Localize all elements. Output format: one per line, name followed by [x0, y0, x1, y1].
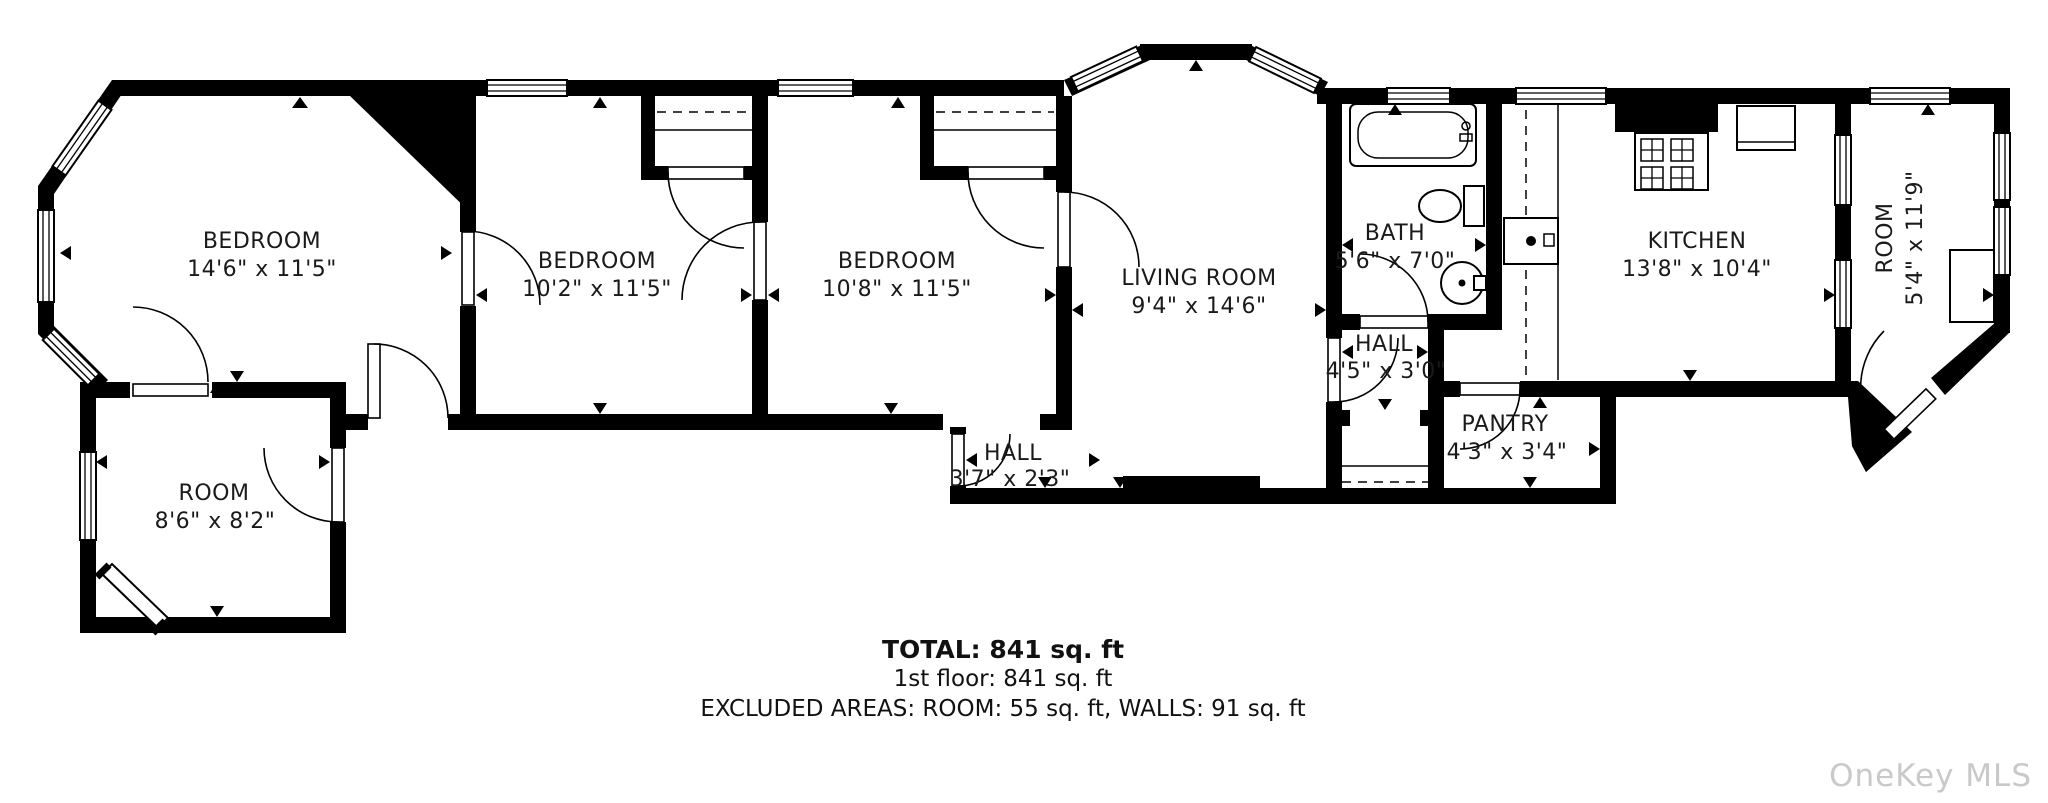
window-living-bay-right	[1249, 47, 1321, 93]
area-summary: TOTAL: 841 sq. ft 1st floor: 841 sq. ft …	[700, 635, 1305, 722]
window-bay-left-wall	[38, 210, 54, 302]
floorplan-page: BEDROOM 14'6" x 11'5" BEDROOM 10'2" x 11…	[0, 0, 2048, 803]
total-area-text: TOTAL: 841 sq. ft	[882, 635, 1124, 664]
window-bedroom3-top	[778, 80, 853, 96]
floor-area-text: 1st floor: 841 sq. ft	[894, 666, 1113, 692]
label-pantry: PANTRY	[1461, 412, 1548, 437]
door-bedroom3-closet	[968, 167, 1044, 248]
label-kitchen: KITCHEN	[1648, 229, 1747, 254]
excluded-areas-text: EXCLUDED AREAS: ROOM: 55 sq. ft, WALLS: …	[700, 696, 1305, 722]
watermark-onekey-mls: OneKey MLS	[1829, 758, 2032, 794]
dims-bedroom-1: 14'6" x 11'5"	[187, 257, 337, 282]
window-living-bay-left	[1071, 47, 1143, 92]
dims-right-room: 5'4" x 11'9"	[1903, 170, 1928, 305]
window-bedroom2-top	[487, 80, 567, 96]
window-bath-top	[1387, 88, 1450, 104]
floorplan-drawing: BEDROOM 14'6" x 11'5" BEDROOM 10'2" x 11…	[0, 0, 2048, 803]
window-bay-upper-diagonal	[53, 101, 112, 176]
fixtures	[97, 104, 1994, 633]
dims-lower-hall: 3'7" x 2'3"	[950, 467, 1071, 492]
walls	[38, 44, 2010, 633]
window-room-left	[80, 452, 96, 540]
door-bedroom1-bottom-right	[368, 344, 448, 418]
refrigerator	[1737, 106, 1795, 150]
bathtub	[1350, 104, 1476, 166]
door-bedroom1-to-room	[133, 307, 208, 396]
dims-bedroom-2: 10'2" x 11'5"	[522, 277, 672, 302]
window-kitchen-top	[1516, 88, 1606, 104]
kitchen-sink	[1504, 218, 1558, 264]
door-bedroom2-to-bedroom3	[682, 222, 766, 300]
label-bedroom-3: BEDROOM	[838, 249, 956, 274]
bedroom3-closet-shelf	[934, 112, 1056, 130]
window-right-room-top	[1870, 88, 1950, 104]
stove	[1635, 133, 1708, 190]
label-bedroom-1: BEDROOM	[203, 229, 321, 254]
hall-closet-shelf	[1342, 466, 1428, 482]
label-bedroom-2: BEDROOM	[538, 249, 656, 274]
label-lower-hall: HALL	[984, 441, 1042, 466]
window-right-room-side-2	[1994, 207, 2010, 275]
door-bedroom2-closet	[668, 167, 744, 248]
window-kitchen-divider-2	[1835, 260, 1851, 328]
dims-kitchen: 13'8" x 10'4"	[1622, 257, 1772, 282]
toilet	[1419, 186, 1484, 226]
dims-bedroom-3: 10'8" x 11'5"	[822, 277, 972, 302]
right-room-closet	[1950, 250, 1994, 322]
dims-bath: 5'6" x 7'0"	[1335, 249, 1456, 274]
label-right-room: ROOM	[1873, 203, 1898, 274]
dims-left-room: 8'6" x 8'2"	[155, 509, 276, 534]
label-bath: BATH	[1365, 221, 1425, 246]
label-living-room: LIVING ROOM	[1121, 266, 1276, 291]
label-left-room: ROOM	[179, 481, 250, 506]
dims-upper-hall: 4'5" x 3'0"	[1326, 359, 1447, 384]
door-right-room-diagonal	[1861, 331, 1936, 444]
window-bay-lower-diagonal	[43, 329, 100, 386]
label-upper-hall: HALL	[1355, 332, 1413, 357]
window-right-room-side-1	[1994, 133, 2010, 200]
dims-living-room: 9'4" x 14'6"	[1131, 294, 1266, 319]
window-kitchen-divider-1	[1835, 135, 1851, 205]
bedroom2-closet-shelf	[655, 112, 752, 130]
dims-pantry: 4'3" x 3'4"	[1447, 440, 1568, 465]
door-room-left	[264, 448, 344, 522]
door-bedroom3-to-living	[1058, 192, 1139, 267]
room-labels: BEDROOM 14'6" x 11'5" BEDROOM 10'2" x 11…	[155, 170, 1928, 534]
